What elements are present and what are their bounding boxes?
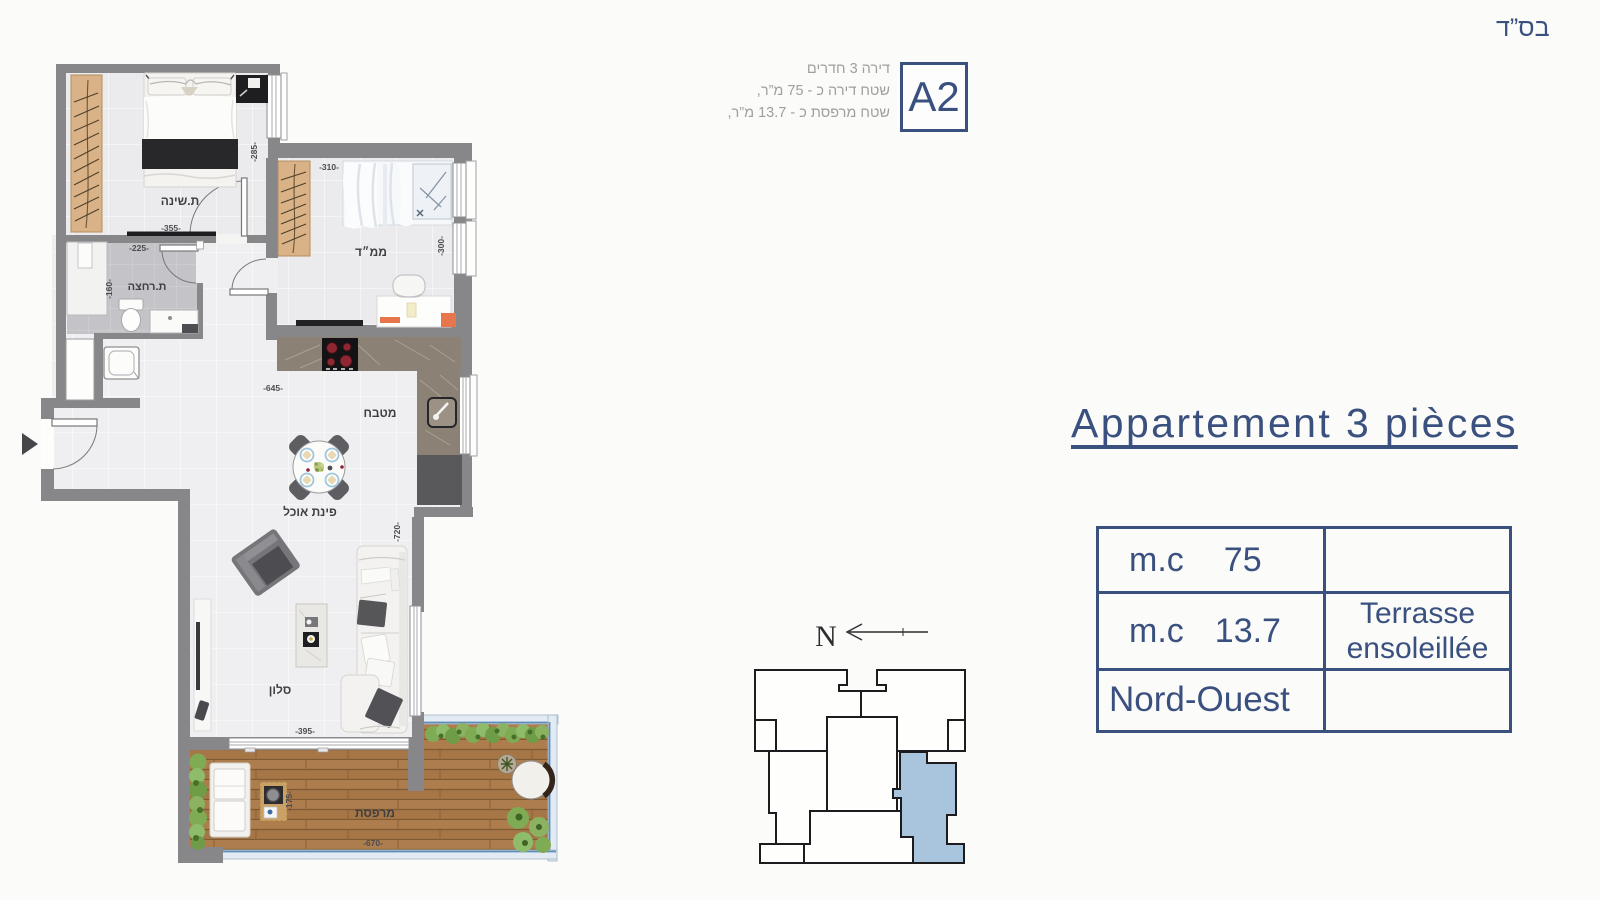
svg-text:N: N	[815, 620, 837, 653]
svg-text:ת.שינה: ת.שינה	[161, 194, 200, 208]
svg-text:ת.רחצה: ת.רחצה	[128, 281, 167, 293]
svg-text:-285-: -285-	[249, 142, 259, 162]
svg-text:ממ״ד: ממ״ד	[355, 245, 387, 259]
svg-text:מרפסת: מרפסת	[355, 806, 395, 820]
svg-text:-160-: -160-	[104, 279, 114, 299]
svg-text:פינת אוכל: פינת אוכל	[283, 505, 337, 519]
svg-text:-395-: -395-	[295, 726, 315, 736]
svg-text:-300-: -300-	[436, 236, 446, 256]
svg-text:-175-: -175-	[284, 791, 294, 811]
svg-text:סלון: סלון	[269, 683, 291, 697]
svg-text:-670-: -670-	[363, 838, 383, 848]
svg-text:-355-: -355-	[161, 223, 181, 233]
svg-text:-720-: -720-	[392, 522, 402, 542]
svg-text:-310-: -310-	[319, 162, 339, 172]
svg-text:מטבח: מטבח	[363, 406, 396, 420]
svg-text:-645-: -645-	[263, 383, 283, 393]
svg-text:-225-: -225-	[129, 243, 149, 253]
